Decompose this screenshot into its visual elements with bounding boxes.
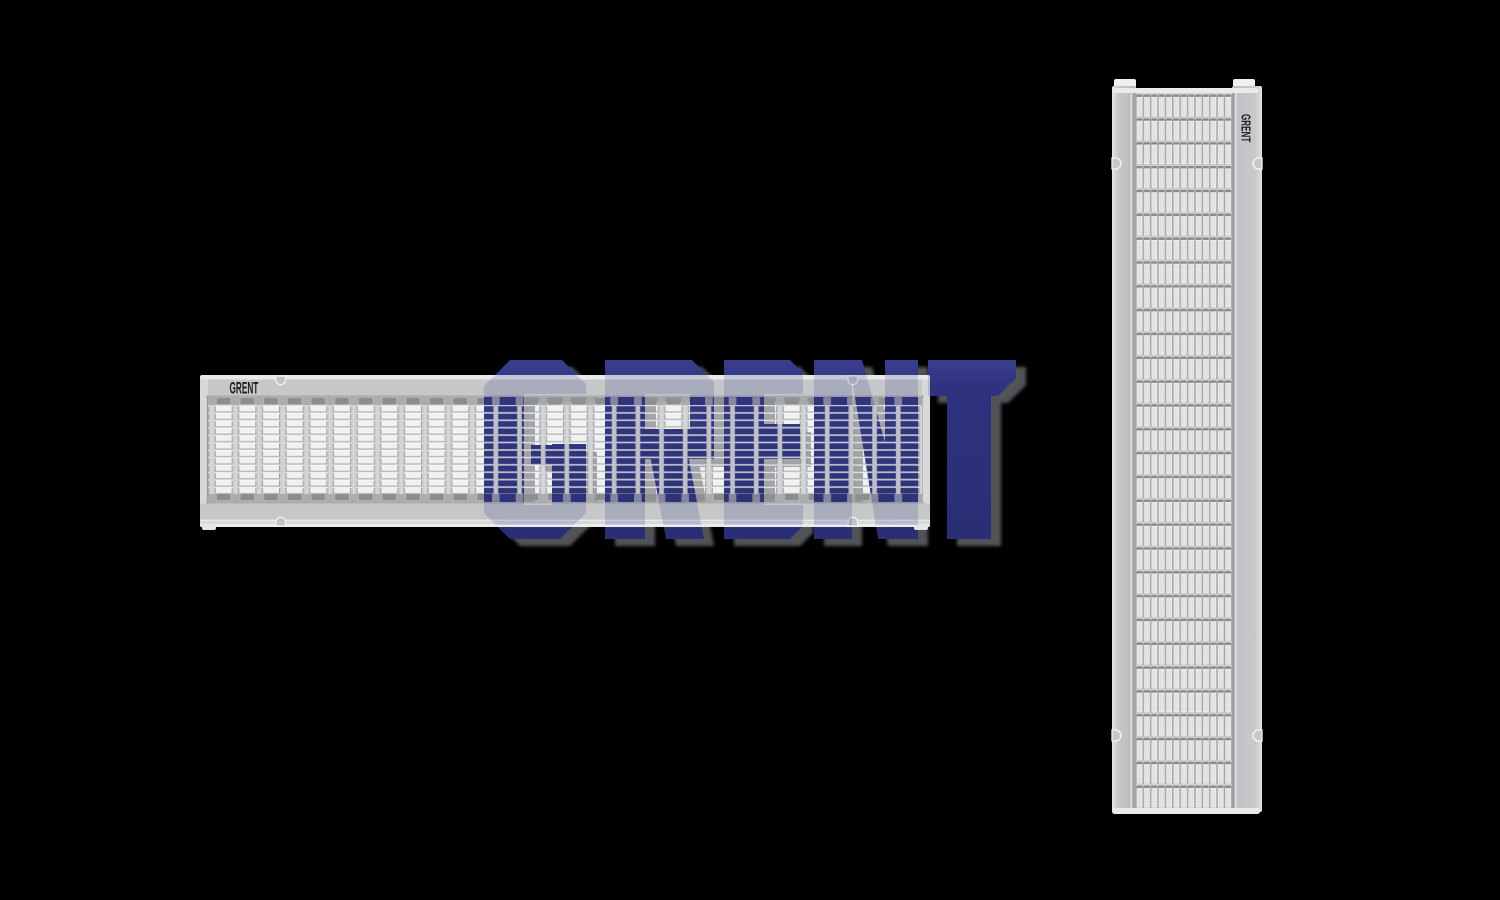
svg-text:GRENT: GRENT: [230, 378, 259, 397]
svg-text:GRENT: GRENT: [1238, 114, 1252, 143]
